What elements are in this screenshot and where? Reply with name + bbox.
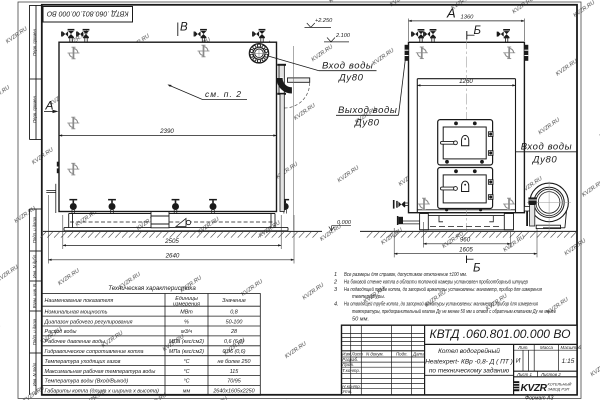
svg-text:Дата: Дата [412,351,425,356]
svg-text:Ду80: Ду80 [338,73,364,84]
svg-text:Ду80: Ду80 [354,118,380,129]
svg-text:2.100: 2.100 [335,33,351,39]
svg-text:КВТД .060.801.00.000 ВО: КВТД .060.801.00.000 ВО [430,328,571,341]
svg-text:МПа (кгс/см2): МПа (кгс/см2) [169,349,204,355]
svg-text:Техническая характеристика: Техническая характеристика [108,285,196,292]
svg-text:А: А [446,6,456,21]
svg-text:Максимальная рабочая температу: Максимальная рабочая температура воды [45,369,156,375]
svg-text:Подп.: Подп. [396,351,408,356]
svg-text:Температура уходящих газов: Температура уходящих газов [45,359,121,365]
svg-text:0,06 (0,6): 0,06 (0,6) [222,349,245,355]
svg-text:960: 960 [460,236,471,243]
svg-text:Гидравлическое сопротивление к: Гидравлическое сопротивление котла [45,349,144,355]
svg-text:Выход воды: Выход воды [338,105,397,116]
svg-text:Лит.: Лит. [517,345,528,350]
svg-text:Значение: Значение [222,298,246,304]
svg-text:Формат А3: Формат А3 [525,396,553,400]
svg-text:Масштаб: Масштаб [561,345,582,350]
svg-text:50-100: 50-100 [226,319,243,325]
svg-text:На отводящей трубе котла ,до з: На отводящей трубе котла ,до запорной ар… [344,301,538,308]
svg-text:28: 28 [230,329,237,335]
svg-text:Т.контр.: Т.контр. [342,368,360,373]
svg-text:не более 250: не более 250 [218,359,251,365]
svg-text:м3/ч: м3/ч [181,329,192,335]
svg-text:+2.250: +2.250 [315,18,333,24]
svg-text:Инв. N подл.: Инв. N подл. [32,362,37,386]
svg-text:50 мм.: 50 мм. [352,316,369,322]
svg-text:МВт: МВт [180,309,193,315]
svg-text:Все размеры для справок, допус: Все размеры для справок, допустимое откл… [344,272,467,278]
svg-text:Подп. и дата: Подп. и дата [32,216,37,243]
svg-text:°С: °С [183,359,189,365]
svg-text:температуры, предохранительный: температуры, предохранительный клапан Ду… [352,308,556,315]
svg-text:И: И [516,358,521,365]
svg-text:Вход воды: Вход воды [521,141,573,152]
svg-text:МПа (кгс/см2): МПа (кгс/см2) [169,339,204,345]
svg-text:На боковой стенке котла в обла: На боковой стенке котла в области топочн… [344,279,528,286]
svg-text:1:15: 1:15 [562,358,575,365]
svg-text:КОТЕЛЬНЫЙ: КОТЕЛЬНЫЙ [548,383,572,387]
svg-text:0.000: 0.000 [337,220,352,226]
svg-text:70/95: 70/95 [227,379,241,385]
svg-text:Масса: Масса [540,345,554,350]
svg-text:KVZR: KVZR [521,383,548,394]
svg-text:2390: 2390 [159,128,174,135]
svg-text:N докум.: N докум. [366,351,384,356]
svg-text:Габариты котла (длина х ширина: Габариты котла (длина х ширина х высота) [45,389,160,395]
svg-text:Диапазон рабочего регулировани: Диапазон рабочего регулирования [44,319,133,325]
svg-text:Изм.: Изм. [342,351,351,356]
svg-text:Ду80: Ду80 [532,155,558,166]
svg-text:%: % [184,319,189,325]
svg-text:2505: 2505 [164,238,179,245]
svg-text:1260: 1260 [459,78,473,85]
svg-text:4.: 4. [334,302,339,308]
svg-text:Наименование показателя: Наименование показателя [45,298,114,304]
svg-text:Перв. примен.: Перв. примен. [32,28,37,56]
svg-text:2640х1605х2250: 2640х1605х2250 [212,389,254,395]
svg-text:Листов 2: Листов 2 [540,372,561,377]
svg-text:°С: °С [183,379,189,385]
svg-text:1605: 1605 [459,246,473,253]
svg-text:Котел водогрейный: Котел водогрейный [438,347,500,355]
svg-text:Пров.: Пров. [342,362,354,367]
svg-text:В: В [180,22,188,34]
svg-text:Расход воды: Расход воды [45,329,77,335]
svg-text:см. п. 2: см. п. 2 [205,89,242,99]
svg-text:температуры.: температуры. [352,294,385,300]
svg-text:КВТД .060.801.00.000 ВО: КВТД .060.801.00.000 ВО [46,9,128,16]
svg-text:Утв.: Утв. [342,389,352,394]
svg-text:А: А [45,99,54,113]
svg-text:1360: 1360 [461,14,475,20]
svg-text:Номинальная мощность: Номинальная мощность [45,309,108,315]
svg-text:На подводящей трубе котла, до: На подводящей трубе котла, до запорной а… [344,286,542,293]
svg-text:2: 2 [333,280,337,286]
svg-text:115: 115 [230,369,240,375]
svg-text:Взам. инв. N: Взам. инв. N [32,283,37,308]
svg-text:Вход воды: Вход воды [322,61,374,72]
svg-text:Лист 1: Лист 1 [516,372,533,377]
svg-text:Б: Б [474,25,482,37]
svg-text:°С: °С [183,369,189,375]
svg-text:Рабочее давление воды: Рабочее давление воды [45,339,105,345]
svg-text:Б: Б [473,263,481,275]
svg-text:2640: 2640 [165,252,180,259]
svg-text:измерения: измерения [173,301,200,307]
svg-text:0,8: 0,8 [230,309,238,315]
svg-text:Инв. N дубл.: Инв. N дубл. [32,254,37,278]
svg-text:Подп. и дата: Подп. и дата [32,318,37,345]
svg-text:ЗАВОД РЭП: ЗАВОД РЭП [548,387,570,391]
svg-text:1: 1 [334,272,337,278]
svg-text:0,6 (6,0): 0,6 (6,0) [224,339,244,345]
svg-text:мм: мм [183,389,191,395]
svg-text:Лист: Лист [351,351,364,356]
svg-text:Перв. примен.: Перв. примен. [32,95,37,123]
svg-text:Температура воды (Вход/Выход): Температура воды (Вход/Выход) [45,379,129,385]
svg-text:Heatexpert- КВр -0,8- Д ( ПТ ): Heatexpert- КВр -0,8- Д ( ПТ ) [425,358,513,365]
svg-text:по техническому заданию: по техническому заданию [429,366,509,374]
